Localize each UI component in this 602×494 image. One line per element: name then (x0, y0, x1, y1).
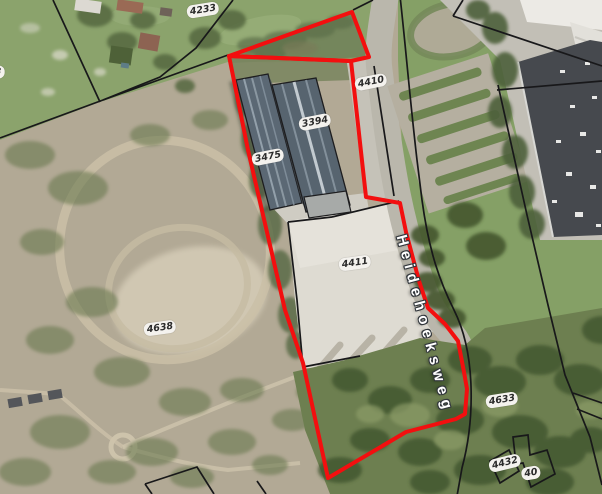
aerial-imagery (0, 0, 602, 494)
aerial-map-canvas[interactable]: 4233 3 4410 3394 3475 4411 4638 4633 443… (0, 0, 602, 494)
